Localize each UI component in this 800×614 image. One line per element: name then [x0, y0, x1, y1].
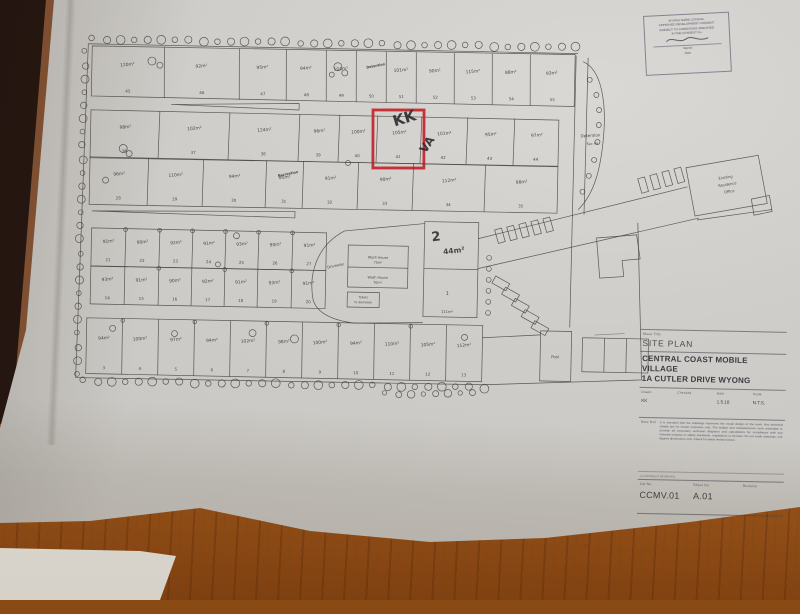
tree-symbol [157, 62, 163, 68]
office-label-1: Existing [718, 175, 733, 181]
lot-boundary [158, 111, 160, 158]
lot-boundary [258, 231, 259, 269]
lot-number: 8 [282, 369, 285, 374]
tree-symbol [246, 380, 252, 386]
lot-number: 7 [246, 368, 249, 373]
tree-symbol [271, 379, 280, 388]
tree-symbol [394, 42, 401, 49]
lot-area-label: 90m² [380, 176, 392, 183]
plan-line [345, 222, 425, 233]
lot-boundary [373, 324, 374, 380]
plan-line [697, 208, 772, 222]
tree-symbol [249, 330, 256, 337]
parking-bay [638, 177, 649, 193]
lot-area-label: 102m² [241, 338, 256, 345]
plan-line [751, 195, 772, 215]
lot-boundary [412, 163, 414, 210]
lot-area-label: 91m² [235, 279, 247, 286]
lot-boundary [338, 115, 340, 162]
tree-symbol [351, 40, 358, 47]
lot-number: 28 [116, 195, 122, 200]
lot-number: 44 [533, 157, 539, 162]
tree-symbol [465, 383, 472, 390]
tree-symbol [329, 382, 335, 388]
tree-symbol [218, 380, 225, 387]
tree-symbol [298, 41, 304, 47]
parking-bay [492, 276, 510, 291]
project-name-section: CENTRAL COAST MOBILE VILLAGE 1A CUTLER D… [640, 351, 787, 390]
lot-boundary [298, 114, 300, 161]
lot-area-label: 90m² [169, 277, 181, 284]
lot-area-label: 91m² [135, 277, 147, 284]
lot-number: 43 [487, 156, 493, 161]
lot-boundary [224, 269, 225, 307]
tree-symbol [475, 41, 482, 48]
wash-house-1-area: 75m² [374, 261, 383, 265]
lot-area-label: 112m² [442, 177, 457, 184]
tree-symbol [382, 391, 386, 395]
lot-boundary [124, 267, 125, 305]
tree-symbol [205, 381, 211, 387]
tree-symbol [338, 40, 344, 46]
note-section: Note Ref It is intended that the drawing… [638, 417, 785, 474]
lot-number: 35 [518, 203, 524, 208]
tree-symbol [74, 330, 79, 335]
tree-symbol [82, 63, 89, 70]
tree-symbol [95, 378, 102, 385]
lot-note: Detention [366, 62, 386, 70]
tree-symbol [78, 251, 83, 256]
lot-number: 5 [174, 367, 177, 372]
lot-area-label: 105m² [421, 341, 436, 348]
lot-number: 21 [105, 257, 111, 262]
lot-area-label: 88m² [505, 69, 517, 76]
lot-boundary [285, 50, 287, 101]
tree-symbol [116, 35, 125, 44]
lot-boundary [225, 231, 226, 269]
lot-boundary [291, 270, 292, 308]
toilets-label2: to demolish [354, 300, 372, 304]
tree-symbol [311, 40, 318, 47]
tree-symbol [82, 48, 87, 53]
tree-symbol [110, 325, 116, 331]
job-no: Job No CCMV.01 [639, 482, 691, 511]
lot-boundary [121, 319, 122, 375]
lot-number: 13 [461, 372, 467, 377]
lot-area-label: 110m² [168, 172, 183, 179]
store-divider [604, 338, 605, 372]
tree-symbol [290, 335, 298, 343]
lot-number: 12 [425, 372, 431, 377]
parking-bay [521, 310, 539, 325]
lot-number: 4 [138, 366, 141, 371]
lot-area-label: 95m² [485, 131, 497, 138]
tree-symbol [433, 391, 439, 397]
tree-symbol [379, 40, 385, 46]
project-name-line1: CENTRAL COAST MOBILE VILLAGE [642, 354, 784, 377]
lot-number: 41 [396, 154, 402, 159]
lot-boundary [529, 55, 531, 106]
tree-symbol [190, 379, 199, 388]
tree-symbol [452, 384, 458, 390]
revision: Revision [742, 484, 781, 513]
lot-number: 23 [173, 259, 179, 264]
tree-symbol [434, 41, 441, 48]
lot-area-label: 97m² [531, 132, 543, 139]
lot-number: 49 [339, 93, 345, 98]
tree-symbol [597, 107, 602, 112]
tree-symbol [199, 37, 208, 46]
tree-symbol [490, 42, 499, 51]
lot-area-label: 100m² [351, 128, 366, 135]
lot-area-label: 100m² [133, 336, 148, 343]
tree-symbol [444, 389, 452, 397]
tree-symbol [486, 310, 491, 315]
lot-boundary [484, 165, 486, 212]
lot-row-outline [91, 45, 575, 107]
tree-symbol [77, 222, 84, 229]
lot-boundary [409, 324, 410, 380]
lot-boundary [159, 229, 160, 267]
tree-symbol [172, 37, 178, 43]
lot-number: 45 [125, 89, 131, 94]
plan-line [478, 214, 699, 273]
council-approval-stamp: WYONG SHIRE COUNCIL APPROVED DEVELOPMENT… [643, 12, 732, 76]
lot-boundary [491, 54, 493, 105]
tree-symbol [82, 90, 87, 95]
lot-area-label: 101m² [437, 130, 452, 137]
lot-boundary [125, 229, 126, 267]
tree-symbol [530, 42, 539, 51]
tree-symbol [546, 44, 552, 50]
tiny-label-mark [595, 333, 625, 336]
lot-number: 50 [369, 93, 375, 98]
tree-symbol [107, 377, 116, 386]
tree-symbol [486, 299, 491, 304]
tree-symbol [486, 288, 491, 293]
lot-boundary [325, 51, 327, 102]
tree-symbol [148, 377, 157, 386]
lot-number: 15 [139, 296, 145, 301]
tree-symbol [364, 39, 373, 48]
lot-number: 48 [304, 92, 310, 97]
lot-boundary [265, 160, 267, 207]
lot-area-label: 105m² [392, 129, 407, 136]
plan-line [570, 56, 576, 328]
drawing-fields: Drawn KK Checked Date 1.5.18 Scale N.T.S… [639, 387, 786, 420]
driveway-label: Driveway [327, 262, 345, 270]
lot-number: 10 [353, 370, 359, 375]
store-divider [626, 339, 627, 373]
tree-symbol [81, 75, 89, 83]
lot-area-label: 93m² [101, 276, 113, 283]
plan-line [596, 234, 641, 279]
lot-area-label: 92m² [170, 240, 182, 247]
lot-boundary [228, 113, 230, 160]
lot-area-label: 94m² [98, 335, 110, 342]
lot-number: 33 [382, 201, 388, 206]
tree-symbol [240, 37, 249, 46]
tree-symbol [227, 38, 234, 45]
lot-number: 39 [316, 152, 322, 157]
lot-boundary [192, 230, 193, 268]
tree-symbol [80, 129, 85, 134]
lot1-number: 1 [446, 291, 449, 297]
toilets-label: Toilets [358, 295, 369, 299]
parking-bay [531, 220, 542, 235]
tree-symbol [75, 234, 83, 242]
field-drawn: Drawn KK [641, 390, 675, 415]
lot-number: 3 [103, 365, 106, 370]
tree-symbol [79, 141, 86, 148]
lot-area-label: 96m² [313, 128, 325, 135]
lot-area-label: 91m² [103, 238, 115, 245]
lot-area-label: 98m² [516, 179, 528, 186]
lot-area-label: 110m² [385, 341, 400, 348]
lot-number: 37 [191, 150, 197, 155]
tree-symbol [469, 390, 475, 396]
lot-number: 22 [139, 258, 145, 263]
lot-boundary [337, 323, 338, 379]
tree-symbol [558, 43, 565, 50]
lot-area-label: 94m² [350, 340, 362, 347]
tree-symbol [89, 35, 95, 41]
tree-symbol [122, 379, 128, 385]
lot-number: 34 [446, 202, 452, 207]
tree-symbol [148, 57, 156, 65]
lot-number: 30 [231, 198, 237, 203]
tree-symbol [77, 195, 85, 203]
lot-boundary [376, 116, 378, 163]
tree-symbol [384, 383, 391, 390]
wash-house-2-area: 70m² [373, 281, 382, 285]
lot-area-label: 90m² [136, 239, 148, 246]
tree-symbol [185, 36, 192, 43]
lot-area-label: 91m² [303, 242, 315, 249]
lot-area-label: 100m² [313, 339, 328, 346]
lot-number: 51 [399, 94, 405, 99]
tree-symbol [79, 156, 87, 164]
lot-boundary [355, 51, 357, 102]
tree-symbol [461, 334, 467, 340]
tree-symbol [518, 43, 525, 50]
lot-number: 24 [206, 259, 212, 264]
lot-number: 27 [306, 261, 312, 266]
lot-area-label: 115m² [465, 68, 480, 75]
tree-symbol [301, 382, 308, 389]
lot-row-outline [89, 157, 558, 214]
lot-boundary [257, 269, 258, 307]
plan-line [92, 207, 295, 218]
tree-symbol [425, 383, 432, 390]
lot-number: 53 [471, 95, 477, 100]
note-label: Note Ref [640, 420, 657, 468]
tree-symbol [215, 39, 221, 45]
wash-house-1-label: Wash House [368, 255, 388, 259]
lot-area-label: 93m² [546, 70, 558, 77]
tree-symbol [486, 277, 491, 282]
lot-boundary [292, 232, 293, 270]
lot-boundary [301, 322, 302, 378]
parking-bay [519, 223, 530, 238]
tree-symbol [447, 41, 456, 50]
lot2-handwritten-area: 44m² [443, 245, 465, 257]
lot-number: 17 [205, 297, 211, 302]
note-text: It is intended that the drawings represe… [659, 420, 783, 470]
tree-symbol [407, 390, 415, 398]
lot-boundary [265, 321, 266, 377]
tree-symbol [323, 39, 332, 48]
lot-number: 52 [433, 95, 439, 100]
tree-symbol [75, 344, 82, 351]
tree-symbol [215, 262, 220, 267]
tree-symbol [480, 384, 489, 393]
parking-bay [502, 287, 520, 302]
lot-boundary [229, 321, 230, 377]
parking-bay [662, 170, 673, 186]
tree-symbol [131, 37, 137, 43]
lot-boundary [415, 52, 417, 103]
title-block: Sheet Title SITE PLAN CENTRAL COAST MOBI… [637, 329, 787, 517]
wash-house-2-label: Wash House [368, 275, 388, 279]
tree-symbol [74, 357, 82, 365]
lot-number: 29 [172, 196, 178, 201]
tree-symbol [422, 42, 428, 48]
sheet-title: SITE PLAN [642, 338, 784, 351]
parking-bay [650, 174, 661, 190]
lot-area-label: 120m² [120, 61, 135, 68]
office-label-2: Residence [718, 181, 738, 188]
tree-symbol [586, 173, 591, 178]
lot-number: 20 [306, 299, 312, 304]
lot-number: 19 [272, 298, 278, 303]
lot-boundary [158, 267, 159, 305]
lot-area-label: 124m² [257, 127, 272, 134]
lot-area-label: 98m² [278, 339, 290, 346]
tree-symbol [233, 233, 239, 239]
lot-boundary [385, 52, 387, 103]
tree-symbol [592, 157, 597, 162]
lot-number: 6 [210, 367, 213, 372]
site-plan-drawing: 120m²4592m²4695m²4794m²48104m²4950Detent… [0, 0, 800, 614]
lot-number: 26 [272, 261, 278, 266]
tree-symbol [462, 42, 468, 48]
plan-line [76, 369, 642, 389]
plan-line [483, 334, 541, 339]
office-label-3: Office [724, 189, 736, 195]
lot-area-label: 92m² [202, 278, 214, 285]
tree-symbol [458, 391, 462, 395]
lot-area-label: 96m² [113, 171, 125, 178]
tree-symbol [268, 38, 275, 45]
tree-symbol [505, 44, 511, 50]
lot-boundary [453, 53, 455, 104]
pool-label: Pool [551, 354, 559, 359]
lot-number: 11 [389, 371, 395, 376]
detention-label: Detention [580, 132, 600, 138]
lot1-area: 111m² [441, 310, 453, 314]
lot-number: 40 [355, 153, 361, 158]
lot-number: 14 [105, 295, 111, 300]
field-scale: Scale N.T.S. [752, 392, 783, 417]
handwritten-va: VA [416, 133, 437, 155]
field-checked: Checked [677, 391, 715, 416]
lot-number: 18 [238, 298, 244, 303]
tree-symbol [345, 160, 350, 165]
lot-area-label: 94m² [300, 65, 312, 72]
plan-line [171, 101, 299, 110]
tree-symbol [103, 36, 110, 43]
lot-number: 54 [509, 96, 515, 101]
lot2-handwritten-number: 2 [431, 229, 442, 245]
lot-boundary [357, 162, 359, 209]
tree-symbol [487, 255, 492, 260]
lot-number: 9 [318, 369, 321, 374]
lot-boundary [302, 161, 304, 208]
tree-symbol [171, 330, 177, 336]
tree-symbol [288, 382, 294, 388]
tree-symbol [78, 210, 83, 215]
tree-symbol [396, 392, 402, 398]
store-group-outline [582, 338, 649, 373]
tree-symbol [354, 380, 363, 389]
lot-boundary [202, 159, 204, 206]
lot-area-label: 90m² [429, 68, 441, 75]
lot-boundary [157, 319, 158, 375]
tree-symbol [421, 392, 425, 396]
tree-symbol [80, 171, 85, 176]
lot-boundary [238, 49, 240, 100]
tree-symbol [176, 378, 183, 385]
lot-area-label: 112m² [456, 342, 471, 349]
lot-number: 16 [172, 296, 178, 301]
lot-area-label: 92m² [195, 63, 207, 70]
tree-symbol [580, 189, 585, 194]
wash-house-divider [348, 267, 408, 268]
lot-number: 55 [550, 97, 556, 102]
tree-symbol [135, 378, 142, 385]
tree-symbol [126, 151, 132, 157]
sheet-no: Sheet No A.01 [693, 483, 741, 512]
lot-1-2-divider [424, 269, 478, 270]
parking-bay [511, 298, 529, 313]
lot-area-label: 101m² [393, 67, 408, 74]
tree-symbol [79, 183, 86, 190]
lot-area-label: 91m² [302, 280, 314, 287]
lot-area-label: 90m² [269, 242, 281, 249]
lot-boundary [163, 47, 165, 98]
tree-symbol [412, 384, 418, 390]
lot-number: 38 [261, 151, 267, 156]
tree-symbol [103, 177, 109, 183]
lot-boundary [191, 268, 192, 306]
tree-symbol [594, 92, 599, 97]
parking-bay [495, 228, 506, 243]
tree-symbol [255, 39, 261, 45]
lot-area-label: 98m² [119, 124, 131, 131]
tree-symbol [397, 382, 406, 391]
tree-symbol [75, 371, 80, 376]
paper-content: 120m²4592m²4695m²4794m²48104m²4950Detent… [0, 0, 800, 614]
parking-bay [531, 321, 549, 336]
tree-symbol [571, 42, 580, 51]
tree-symbol [587, 77, 592, 82]
tree-symbol [79, 114, 87, 122]
project-name-line2: 1A CUTLER DRIVE WYONG [642, 374, 784, 387]
lot-area-label: 93m² [268, 279, 280, 286]
lot-number: 47 [260, 91, 266, 96]
plan-line [478, 183, 687, 243]
